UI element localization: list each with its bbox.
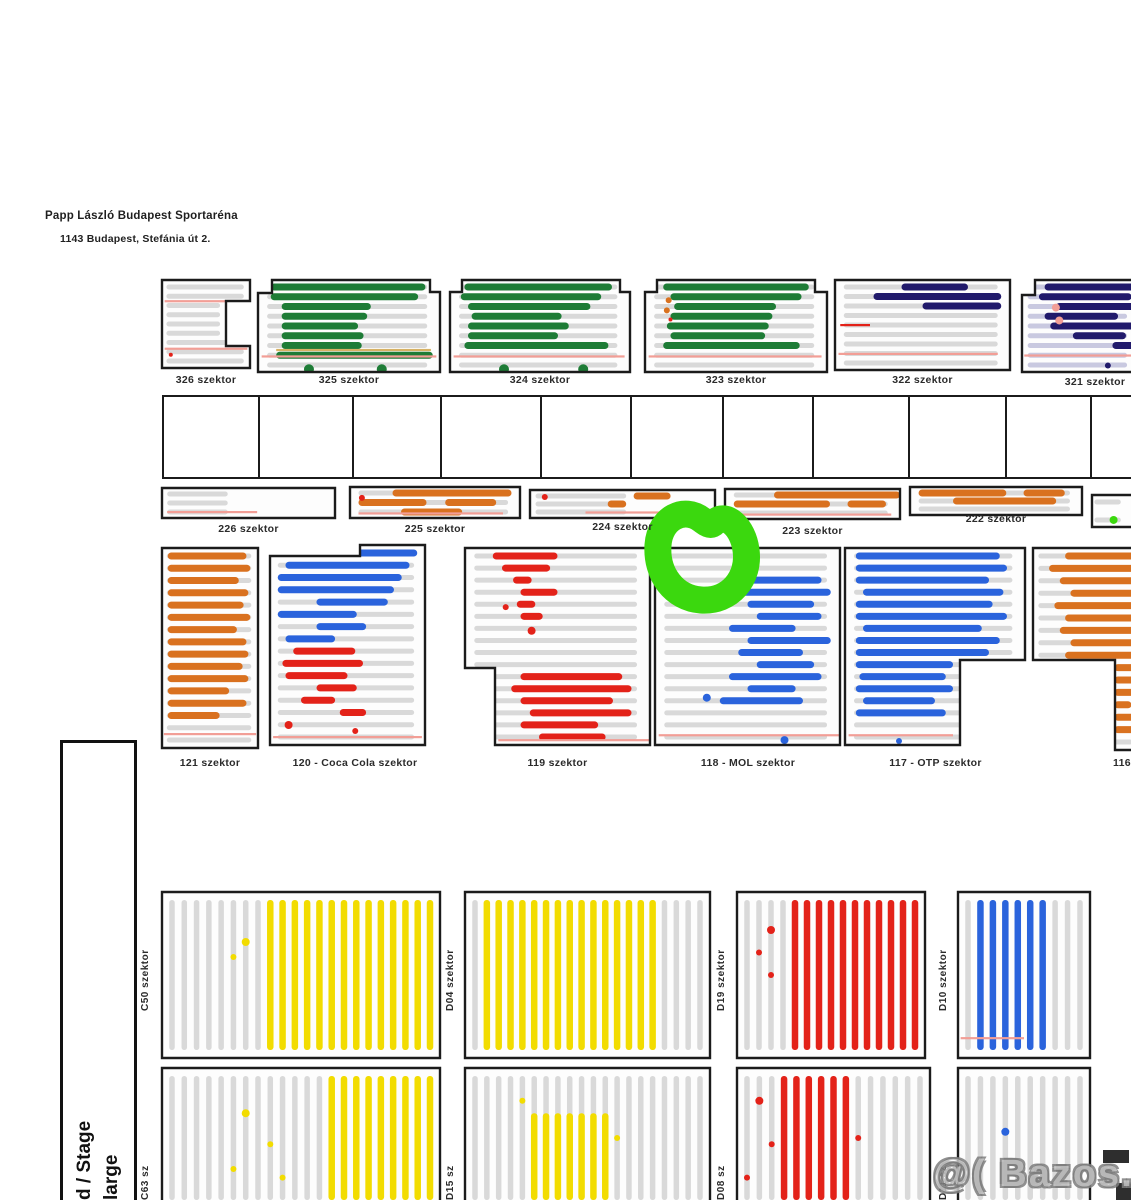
sector-block-fA: [162, 892, 440, 1058]
sector-block-s222: [910, 487, 1082, 515]
sector-block-fF: [465, 1068, 710, 1200]
sector-label-326: 326 szektor: [162, 374, 250, 386]
sector-block-s225: [350, 487, 520, 518]
floor-label-row2-c: D08 sz: [716, 1152, 727, 1200]
suite-box-divider: [258, 395, 260, 477]
sector-block-fB: [465, 892, 710, 1058]
sector-label-121: 121 szektor: [162, 757, 258, 769]
venue-address: 1143 Budapest, Stefánia út 2.: [60, 233, 211, 245]
floor-label-row2-a: C63 sz: [140, 1152, 151, 1200]
stage-label-line2: large: [101, 1136, 123, 1200]
bazos-watermark: @( Bazos.sk: [933, 1153, 1131, 1196]
suite-box-divider: [1005, 395, 1007, 477]
sector-block-s226: [162, 488, 335, 518]
sector-label-226: 226 szektor: [162, 523, 335, 535]
suite-box-divider: [440, 395, 442, 477]
sector-block-fG: [737, 1068, 930, 1200]
sector-label-324: 324 szektor: [450, 374, 630, 386]
sector-label-322: 322 szektor: [835, 374, 1010, 386]
sector-label-321: 321 szektor: [1030, 376, 1131, 388]
sector-label-223: 223 szektor: [725, 525, 900, 537]
suite-box-row-top-line: [162, 395, 1131, 397]
sector-label-224: 224 szektor: [530, 521, 715, 533]
suite-box-row-bottom-line: [162, 477, 1131, 479]
suite-box-divider: [908, 395, 910, 477]
suite-box-divider: [540, 395, 542, 477]
suite-box-divider: [722, 395, 724, 477]
sector-block-s121: [162, 548, 258, 748]
sector-label-117: 117 - OTP szektor: [838, 757, 1033, 769]
sector-block-s323: [645, 280, 827, 372]
sector-block-fC: [737, 892, 925, 1058]
sector-block-s324: [450, 280, 630, 374]
sector-label-225: 225 szektor: [350, 523, 520, 535]
sector-block-s322: [835, 280, 1010, 370]
sector-block-s221: [1092, 495, 1131, 527]
floor-label-row1-d: D10 szektor: [938, 900, 949, 1060]
suite-box-divider: [352, 395, 354, 477]
sector-label-222: 222 szektor: [910, 513, 1082, 525]
suite-box-divider: [630, 395, 632, 477]
sector-label-323: 323 szektor: [645, 374, 827, 386]
sector-block-fD: [958, 892, 1090, 1058]
sector-label-120: 120 - Coca Cola szektor: [250, 757, 460, 769]
floor-label-row2-b: D15 sz: [445, 1152, 456, 1200]
floor-label-row1-b: D04 szektor: [445, 900, 456, 1060]
sector-block-s326: [162, 280, 250, 368]
suite-box-divider: [1090, 395, 1092, 477]
sector-block-s119: [465, 548, 650, 745]
sector-label-116: 116 szektor: [1088, 757, 1131, 769]
stage-label-line1: d / Stage: [74, 1082, 96, 1200]
sector-block-s120: [270, 545, 425, 745]
floor-label-row1-c: D19 szektor: [716, 900, 727, 1060]
floor-label-row1-a: C50 szektor: [140, 900, 151, 1060]
sector-block-fE: [162, 1068, 440, 1200]
stage-area: [60, 740, 137, 1200]
sector-block-s321: [1022, 280, 1131, 372]
sector-label-119: 119 szektor: [465, 757, 650, 769]
sector-block-s223: [725, 489, 900, 519]
seating-map-canvas: Papp László Budapest Sportaréna 1143 Bud…: [0, 0, 1131, 1200]
sector-block-s116: [1033, 548, 1131, 750]
arena-map: [0, 0, 1131, 1200]
sector-block-s117: [845, 548, 1025, 745]
sector-label-118: 118 - MOL szektor: [648, 757, 848, 769]
venue-name: Papp László Budapest Sportaréna: [45, 210, 238, 222]
sector-label-325: 325 szektor: [258, 374, 440, 386]
suite-box-divider: [162, 395, 164, 477]
suite-box-divider: [812, 395, 814, 477]
sector-block-s325: [258, 280, 440, 374]
